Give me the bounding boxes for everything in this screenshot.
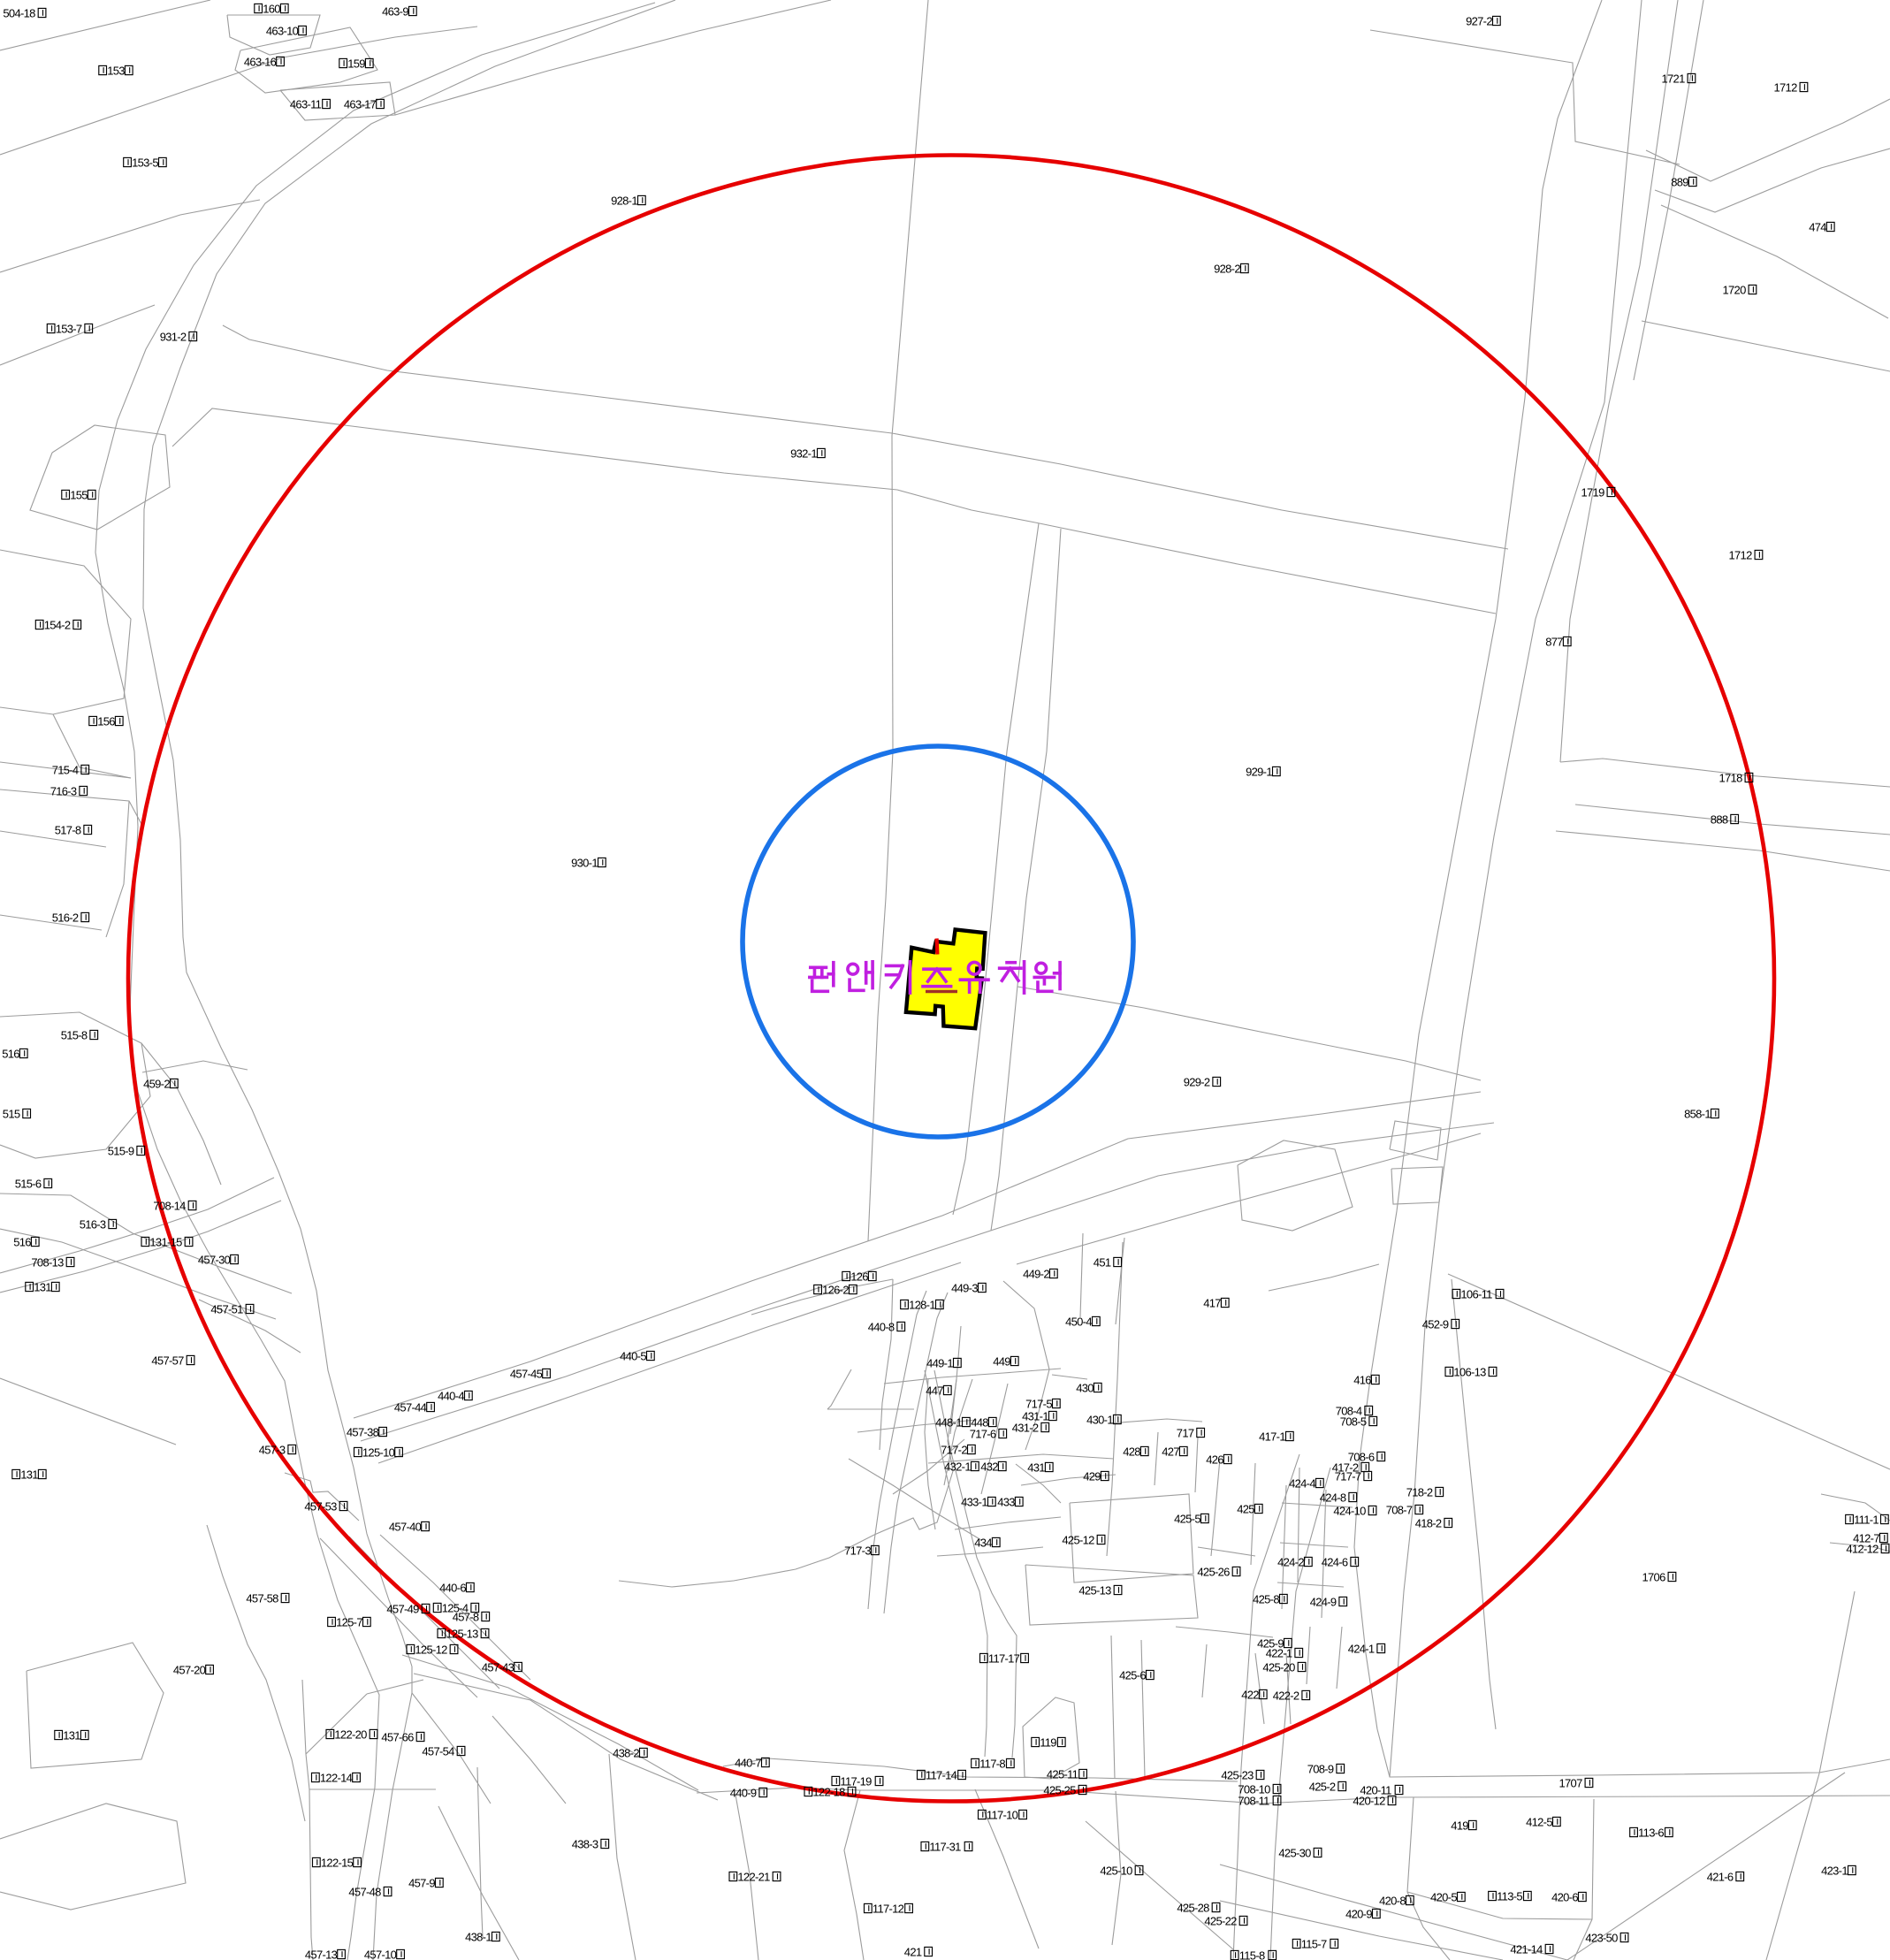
svg-text:430-1: 430-1 <box>1086 1413 1113 1426</box>
svg-text:111-1: 111-1 <box>1854 1513 1879 1526</box>
svg-text:425-30: 425-30 <box>1278 1846 1311 1859</box>
svg-text:153-5: 153-5 <box>132 156 158 169</box>
svg-text:858-1: 858-1 <box>1684 1107 1711 1120</box>
svg-text:426: 426 <box>1206 1453 1223 1466</box>
svg-text:929-1: 929-1 <box>1246 765 1272 778</box>
svg-text:425-25: 425-25 <box>1043 1783 1076 1796</box>
svg-text:122-20: 122-20 <box>334 1727 367 1741</box>
svg-text:1721: 1721 <box>1662 72 1686 85</box>
svg-text:420-8: 420-8 <box>1379 1894 1406 1907</box>
svg-text:447: 447 <box>926 1384 943 1397</box>
svg-text:877: 877 <box>1545 635 1563 648</box>
svg-text:128-1: 128-1 <box>909 1298 935 1311</box>
svg-text:425-13: 425-13 <box>1078 1583 1111 1597</box>
svg-text:433-1: 433-1 <box>961 1495 987 1508</box>
svg-text:450-4: 450-4 <box>1065 1315 1092 1328</box>
svg-text:708-14: 708-14 <box>153 1199 186 1212</box>
svg-text:457-38: 457-38 <box>347 1425 379 1438</box>
svg-text:416: 416 <box>1353 1373 1371 1386</box>
svg-text:425-11: 425-11 <box>1047 1767 1078 1781</box>
svg-text:440-8: 440-8 <box>868 1320 895 1333</box>
svg-text:106-11: 106-11 <box>1460 1287 1492 1300</box>
svg-text:424-8: 424-8 <box>1320 1491 1346 1504</box>
svg-text:517-8: 517-8 <box>55 823 81 836</box>
svg-text:117-19: 117-19 <box>840 1774 872 1788</box>
svg-text:716-3: 716-3 <box>50 784 77 797</box>
svg-text:927-2: 927-2 <box>1466 14 1492 27</box>
svg-text:448-1: 448-1 <box>935 1415 962 1429</box>
svg-text:718-2: 718-2 <box>1406 1485 1433 1499</box>
svg-text:928-1: 928-1 <box>611 194 637 207</box>
svg-text:425-22: 425-22 <box>1204 1914 1237 1927</box>
svg-text:425: 425 <box>1237 1502 1254 1515</box>
svg-text:425-23: 425-23 <box>1221 1768 1254 1781</box>
svg-text:424-4: 424-4 <box>1289 1476 1315 1490</box>
svg-text:449-2: 449-2 <box>1023 1267 1049 1280</box>
svg-text:929-2: 929-2 <box>1184 1075 1210 1088</box>
svg-text:474: 474 <box>1809 220 1826 233</box>
svg-text:122-15: 122-15 <box>321 1856 354 1869</box>
svg-text:440-6: 440-6 <box>439 1581 466 1594</box>
svg-text:106-13: 106-13 <box>1453 1365 1486 1378</box>
svg-text:131: 131 <box>34 1280 51 1293</box>
svg-text:708-11: 708-11 <box>1238 1794 1269 1807</box>
svg-text:117-10: 117-10 <box>987 1808 1018 1821</box>
svg-text:122-21: 122-21 <box>737 1870 770 1883</box>
svg-text:433: 433 <box>997 1495 1015 1508</box>
svg-text:117-31: 117-31 <box>929 1840 961 1853</box>
svg-text:457-8: 457-8 <box>453 1610 479 1623</box>
svg-text:428: 428 <box>1123 1445 1140 1458</box>
svg-text:516-3: 516-3 <box>80 1217 106 1231</box>
svg-text:113-6: 113-6 <box>1638 1826 1664 1839</box>
svg-text:930-1: 930-1 <box>571 856 598 869</box>
svg-text:425-2: 425-2 <box>1309 1780 1336 1793</box>
svg-text:420-6: 420-6 <box>1551 1890 1578 1903</box>
svg-text:717-2: 717-2 <box>941 1443 967 1456</box>
svg-text:122-14: 122-14 <box>320 1771 353 1784</box>
svg-text:423-1: 423-1 <box>1821 1864 1848 1877</box>
svg-text:438-3: 438-3 <box>572 1837 598 1850</box>
svg-text:432-1: 432-1 <box>944 1460 971 1473</box>
svg-text:431: 431 <box>1027 1460 1045 1474</box>
svg-text:457-57: 457-57 <box>151 1354 184 1367</box>
svg-text:420-5: 420-5 <box>1430 1890 1457 1903</box>
svg-text:417-1: 417-1 <box>1259 1430 1285 1443</box>
svg-text:419: 419 <box>1451 1819 1468 1832</box>
svg-text:457-9: 457-9 <box>408 1876 435 1889</box>
svg-text:457-30: 457-30 <box>198 1253 231 1266</box>
svg-text:117-17: 117-17 <box>988 1651 1020 1665</box>
svg-text:717-7: 717-7 <box>1335 1469 1361 1483</box>
svg-text:457-66: 457-66 <box>381 1730 414 1743</box>
svg-text:457-13: 457-13 <box>305 1948 338 1960</box>
svg-text:516: 516 <box>13 1235 31 1248</box>
svg-text:425-20: 425-20 <box>1262 1660 1295 1674</box>
svg-text:420-12: 420-12 <box>1353 1794 1385 1807</box>
svg-text:125-7: 125-7 <box>336 1615 362 1628</box>
svg-text:449-3: 449-3 <box>951 1281 978 1294</box>
svg-text:117-8: 117-8 <box>979 1757 1005 1770</box>
svg-text:160: 160 <box>263 2 280 15</box>
svg-text:125-10: 125-10 <box>362 1445 395 1459</box>
svg-text:457-49: 457-49 <box>386 1602 419 1615</box>
svg-text:452-9: 452-9 <box>1422 1317 1449 1331</box>
svg-text:708-13: 708-13 <box>31 1255 64 1269</box>
svg-text:438-2: 438-2 <box>613 1746 639 1759</box>
svg-text:440-5: 440-5 <box>620 1349 646 1362</box>
svg-text:131: 131 <box>63 1728 80 1742</box>
svg-text:421-6: 421-6 <box>1707 1870 1734 1883</box>
svg-text:425-10: 425-10 <box>1100 1864 1132 1877</box>
svg-text:440-9: 440-9 <box>730 1786 757 1799</box>
svg-text:126: 126 <box>850 1270 868 1283</box>
svg-text:425-8: 425-8 <box>1253 1592 1279 1605</box>
svg-text:412-5: 412-5 <box>1526 1815 1552 1828</box>
svg-text:708-5: 708-5 <box>1340 1415 1367 1428</box>
svg-text:715-4: 715-4 <box>52 763 79 776</box>
svg-text:430: 430 <box>1076 1381 1094 1394</box>
svg-text:463-10: 463-10 <box>266 24 299 37</box>
svg-text:434: 434 <box>974 1536 992 1549</box>
svg-text:429: 429 <box>1083 1469 1101 1483</box>
svg-text:119: 119 <box>1040 1735 1056 1749</box>
svg-text:1718: 1718 <box>1719 771 1743 784</box>
svg-text:1707: 1707 <box>1559 1776 1583 1789</box>
svg-text:153-7: 153-7 <box>56 322 82 335</box>
svg-text:717-6: 717-6 <box>970 1427 996 1440</box>
svg-text:418-2: 418-2 <box>1415 1516 1442 1529</box>
svg-text:125-12: 125-12 <box>415 1643 447 1656</box>
svg-text:1712: 1712 <box>1774 80 1798 94</box>
svg-text:928-2: 928-2 <box>1214 262 1240 275</box>
svg-text:457-44: 457-44 <box>394 1400 427 1414</box>
svg-text:159: 159 <box>347 57 365 70</box>
svg-text:515: 515 <box>3 1107 20 1120</box>
svg-text:425-12: 425-12 <box>1062 1533 1094 1546</box>
svg-text:126-2: 126-2 <box>822 1283 849 1296</box>
svg-text:457-58: 457-58 <box>246 1591 278 1605</box>
svg-text:154-2: 154-2 <box>44 618 71 631</box>
svg-text:131: 131 <box>20 1468 38 1481</box>
svg-text:115-8: 115-8 <box>1239 1949 1265 1960</box>
svg-text:423-50: 423-50 <box>1585 1931 1618 1944</box>
svg-text:424-2: 424-2 <box>1277 1555 1304 1568</box>
svg-text:425-28: 425-28 <box>1177 1901 1209 1914</box>
svg-text:424-10: 424-10 <box>1333 1504 1366 1517</box>
svg-text:115-7: 115-7 <box>1301 1937 1327 1950</box>
svg-text:117-14: 117-14 <box>926 1768 957 1781</box>
svg-text:708-7: 708-7 <box>1386 1503 1413 1516</box>
svg-text:125-13: 125-13 <box>446 1627 478 1640</box>
svg-text:421: 421 <box>904 1945 922 1958</box>
svg-text:463-11: 463-11 <box>290 97 322 111</box>
svg-text:1719: 1719 <box>1581 485 1605 499</box>
svg-text:421-14: 421-14 <box>1510 1942 1543 1956</box>
svg-text:457-48: 457-48 <box>348 1885 381 1898</box>
svg-text:457-43: 457-43 <box>482 1660 514 1674</box>
svg-text:440-7: 440-7 <box>735 1756 761 1769</box>
svg-text:424-1: 424-1 <box>1348 1642 1375 1655</box>
svg-text:113-5: 113-5 <box>1497 1889 1522 1903</box>
svg-text:459-2: 459-2 <box>143 1077 170 1090</box>
svg-text:422-1: 422-1 <box>1266 1646 1292 1659</box>
svg-text:425-5: 425-5 <box>1174 1512 1200 1525</box>
svg-text:449: 449 <box>993 1354 1010 1368</box>
svg-text:457-53: 457-53 <box>304 1499 337 1513</box>
svg-text:422-2: 422-2 <box>1273 1689 1299 1702</box>
svg-text:427: 427 <box>1162 1445 1179 1458</box>
svg-text:515-9: 515-9 <box>108 1144 134 1157</box>
svg-text:717: 717 <box>1177 1426 1194 1439</box>
svg-text:516: 516 <box>2 1047 19 1060</box>
svg-text:431-2: 431-2 <box>1012 1421 1039 1434</box>
svg-text:438-1: 438-1 <box>465 1930 492 1943</box>
svg-text:156: 156 <box>97 714 115 728</box>
svg-text:888: 888 <box>1711 812 1728 826</box>
svg-text:424-6: 424-6 <box>1322 1555 1348 1568</box>
svg-text:432: 432 <box>980 1460 998 1473</box>
svg-text:1712: 1712 <box>1729 548 1753 561</box>
svg-text:122-18: 122-18 <box>812 1785 845 1798</box>
svg-text:463-16: 463-16 <box>244 55 277 68</box>
svg-text:451: 451 <box>1094 1255 1111 1269</box>
svg-text:417: 417 <box>1203 1296 1221 1309</box>
svg-text:463-17: 463-17 <box>344 97 377 111</box>
svg-text:457-54: 457-54 <box>422 1744 454 1758</box>
svg-text:117-12: 117-12 <box>873 1902 904 1915</box>
svg-text:457-45: 457-45 <box>510 1367 543 1380</box>
svg-text:131-15: 131-15 <box>149 1235 182 1248</box>
svg-text:717-3: 717-3 <box>844 1544 871 1557</box>
svg-text:515-8: 515-8 <box>61 1028 88 1041</box>
svg-text:457-3: 457-3 <box>259 1443 286 1456</box>
svg-text:515-6: 515-6 <box>15 1177 42 1190</box>
svg-text:1706: 1706 <box>1642 1570 1666 1583</box>
svg-text:425-6: 425-6 <box>1119 1668 1146 1682</box>
svg-text:931-2: 931-2 <box>160 330 187 343</box>
svg-text:449-1: 449-1 <box>926 1356 953 1369</box>
svg-text:425-26: 425-26 <box>1197 1565 1230 1578</box>
svg-text:717-5: 717-5 <box>1025 1397 1052 1410</box>
svg-text:1720: 1720 <box>1723 283 1747 296</box>
svg-text:153: 153 <box>107 64 125 77</box>
svg-text:708-9: 708-9 <box>1307 1762 1334 1775</box>
svg-text:516-2: 516-2 <box>52 911 79 924</box>
svg-text:932-1: 932-1 <box>790 446 817 460</box>
svg-text:155: 155 <box>70 488 88 501</box>
svg-text:504-18: 504-18 <box>3 6 35 19</box>
svg-text:440-4: 440-4 <box>438 1389 464 1402</box>
svg-text:457-51: 457-51 <box>210 1302 243 1316</box>
svg-text:463-9: 463-9 <box>382 4 408 18</box>
svg-text:422: 422 <box>1241 1688 1259 1701</box>
svg-text:412-12: 412-12 <box>1846 1542 1879 1555</box>
svg-text:457-10: 457-10 <box>364 1948 397 1960</box>
svg-text:424-9: 424-9 <box>1310 1595 1337 1608</box>
svg-text:457-20: 457-20 <box>173 1663 206 1676</box>
svg-text:457-40: 457-40 <box>389 1520 422 1533</box>
svg-text:420-9: 420-9 <box>1345 1907 1372 1920</box>
svg-text:889: 889 <box>1671 175 1688 188</box>
